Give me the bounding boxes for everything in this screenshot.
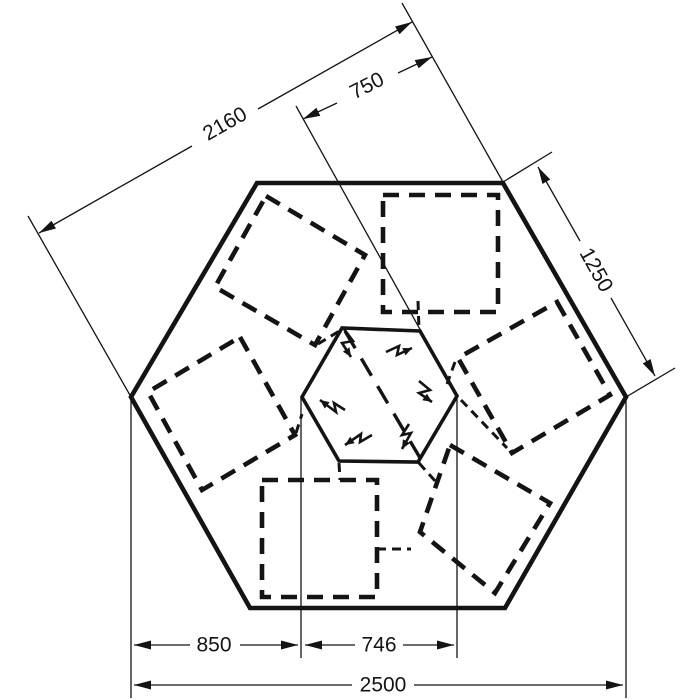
- dimension-label-2500: 2500: [360, 674, 407, 697]
- center-diagonal-line: [345, 331, 426, 468]
- dimension-2160: 2160: [39, 22, 412, 233]
- dimension-label-746: 746: [361, 634, 396, 657]
- panel-square-bottom: [262, 480, 377, 597]
- extension-lines: [28, 3, 675, 698]
- panel-square-bottom-right: [420, 445, 550, 593]
- dimension-label-2160: 2160: [199, 102, 251, 145]
- dimension-label-850: 850: [196, 634, 231, 657]
- drawing-svg: 2160 750 1250 850 746 2500: [0, 0, 700, 700]
- dimension-2500: 2500: [134, 674, 623, 697]
- lightning-icons: [320, 329, 432, 449]
- dimension-label-1250: 1250: [575, 244, 618, 296]
- technical-drawing: 2160 750 1250 850 746 2500: [0, 0, 700, 700]
- dimension-750: 750: [303, 57, 432, 119]
- lightning-icon: [386, 346, 412, 355]
- lightning-icon: [320, 400, 345, 412]
- lightning-icon: [345, 434, 372, 445]
- dimension-850: 850: [134, 634, 298, 657]
- lightning-icon: [419, 381, 432, 402]
- center-hexagon: [302, 328, 457, 468]
- panel-square-right: [458, 302, 610, 453]
- outer-hexagon: [131, 183, 626, 608]
- dimension-746: 746: [305, 634, 454, 657]
- dimension-label-750: 750: [346, 68, 388, 104]
